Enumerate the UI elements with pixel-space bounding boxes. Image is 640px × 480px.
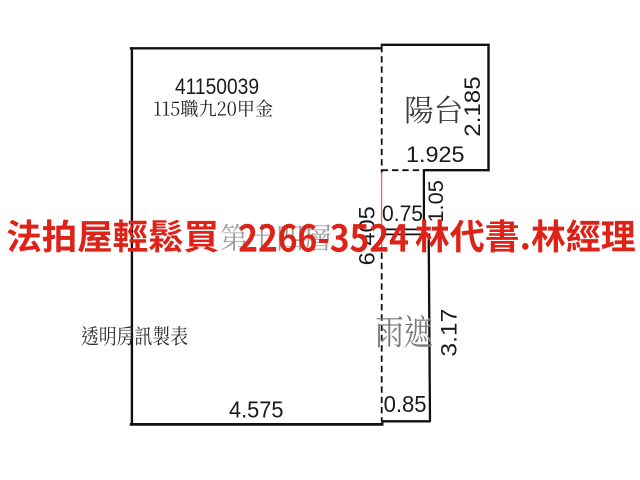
svg-text:1.05: 1.05 xyxy=(424,180,448,223)
svg-text:0.75: 0.75 xyxy=(382,201,423,226)
svg-text:2.185: 2.185 xyxy=(460,76,485,136)
svg-text:0.85: 0.85 xyxy=(384,391,427,417)
svg-text:3.17: 3.17 xyxy=(436,309,461,357)
svg-text:41150039: 41150039 xyxy=(175,74,259,99)
svg-text:1.925: 1.925 xyxy=(406,142,465,167)
svg-text:4.575: 4.575 xyxy=(229,396,284,422)
